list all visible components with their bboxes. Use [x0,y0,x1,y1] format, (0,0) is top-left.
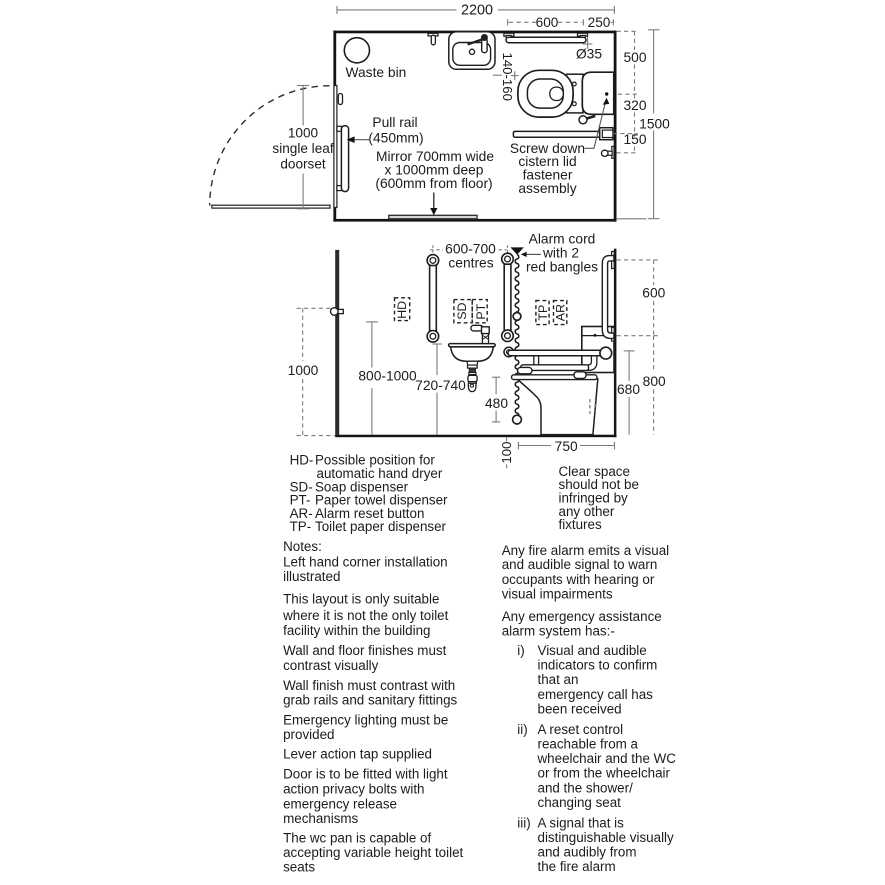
svg-text:The wc pan is capable of: The wc pan is capable of [283,830,431,845]
svg-text:Pull rail: Pull rail [372,115,417,130]
svg-text:600: 600 [642,285,665,300]
svg-text:(600mm from floor): (600mm from floor) [375,176,492,191]
svg-text:Waste bin: Waste bin [346,65,407,80]
svg-text:Any fire alarm emits a visual: Any fire alarm emits a visual [502,543,669,558]
svg-text:and the shower/: and the shower/ [538,780,634,795]
svg-text:2200: 2200 [461,2,493,18]
svg-text:alarm system has:-: alarm system has:- [502,623,615,638]
svg-text:1000: 1000 [288,363,319,378]
svg-text:grab rails and sanitary fittin: grab rails and sanitary fittings [283,693,457,708]
svg-text:centres: centres [448,255,493,270]
svg-text:TP-: TP- [290,519,312,534]
svg-text:that an: that an [538,672,579,687]
svg-text:illustrated: illustrated [283,569,340,584]
svg-text:where it is not the only toile: where it is not the only toilet [282,608,449,623]
svg-text:provided: provided [283,727,334,742]
svg-text:680: 680 [617,382,640,397]
svg-text:Possible position for: Possible position for [315,452,435,467]
svg-text:(450mm): (450mm) [368,130,423,145]
svg-text:contrast visually: contrast visually [283,658,379,673]
svg-text:Visual and audible: Visual and audible [538,643,647,658]
svg-text:AR: AR [554,304,568,321]
svg-text:500: 500 [623,50,646,65]
svg-text:or from the wheelchair: or from the wheelchair [538,766,671,781]
svg-text:A signal that is: A signal that is [538,816,625,831]
svg-text:Any emergency assistance: Any emergency assistance [502,609,662,624]
svg-text:HD-: HD- [290,452,314,467]
svg-text:Toilet paper dispenser: Toilet paper dispenser [315,519,447,534]
svg-text:ii): ii) [517,722,527,737]
svg-text:Lever action tap supplied: Lever action tap supplied [283,746,432,761]
svg-text:720-740: 720-740 [415,378,466,393]
svg-text:doorset: doorset [280,157,326,172]
svg-text:320: 320 [623,98,646,113]
svg-text:This layout is only suitable: This layout is only suitable [283,592,439,607]
svg-text:150: 150 [623,132,646,147]
svg-text:mechanisms: mechanisms [283,811,358,826]
svg-text:seats: seats [283,860,315,875]
svg-text:action privacy bolts with: action privacy bolts with [283,782,424,797]
svg-text:i): i) [517,643,524,658]
svg-text:Alarm cord: Alarm cord [529,231,596,246]
svg-text:1000: 1000 [288,126,319,141]
svg-text:and audibly from: and audibly from [538,845,637,860]
svg-text:100: 100 [499,442,514,464]
svg-text:Ø35: Ø35 [576,46,602,61]
svg-text:480: 480 [485,396,508,411]
svg-text:SD: SD [455,303,469,320]
svg-text:emergency call has: emergency call has [538,687,654,702]
svg-text:Door is to be fitted with ligh: Door is to be fitted with light [283,767,448,782]
svg-text:140-160: 140-160 [500,53,515,101]
svg-text:Left hand corner installation: Left hand corner installation [283,555,448,570]
svg-text:Wall finish must contrast with: Wall finish must contrast with [283,678,455,693]
svg-text:indicators to confirm: indicators to confirm [538,658,658,673]
svg-text:PT: PT [474,303,488,319]
svg-text:changing seat: changing seat [538,795,622,810]
svg-text:wheelchair and the WC: wheelchair and the WC [537,751,677,766]
svg-text:emergency release: emergency release [283,796,397,811]
svg-text:750: 750 [555,439,578,454]
svg-text:Emergency lighting must be: Emergency lighting must be [283,713,448,728]
svg-text:Notes:: Notes: [283,539,322,554]
svg-text:red bangles: red bangles [526,260,598,275]
svg-text:accepting variable height toil: accepting variable height toilet [283,845,463,860]
svg-text:single leaf: single leaf [272,141,333,156]
svg-text:visual impairments: visual impairments [502,586,613,601]
svg-text:and audible signal to warn: and audible signal to warn [502,557,658,572]
svg-text:fixtures: fixtures [559,517,602,532]
svg-text:facility within the building: facility within the building [283,623,430,638]
svg-text:iii): iii) [517,816,530,831]
svg-text:800-1000: 800-1000 [358,368,417,383]
svg-text:600: 600 [536,15,559,30]
svg-text:occupants with hearing or: occupants with hearing or [502,572,655,587]
svg-text:Wall and floor finishes must: Wall and floor finishes must [283,643,447,658]
svg-text:1500: 1500 [639,116,670,131]
svg-text:the fire alarm: the fire alarm [538,859,616,874]
svg-text:reachable from a: reachable from a [538,736,639,751]
svg-text:250: 250 [588,15,611,30]
svg-text:600-700: 600-700 [445,241,496,256]
svg-text:assembly: assembly [518,181,576,196]
svg-text:distinguishable visually: distinguishable visually [538,830,675,845]
svg-text:TP: TP [536,305,550,321]
svg-text:with 2: with 2 [542,245,579,260]
svg-text:A reset control: A reset control [538,722,624,737]
svg-text:HD: HD [395,301,409,319]
svg-text:800: 800 [643,374,666,389]
svg-text:been received: been received [538,701,622,716]
